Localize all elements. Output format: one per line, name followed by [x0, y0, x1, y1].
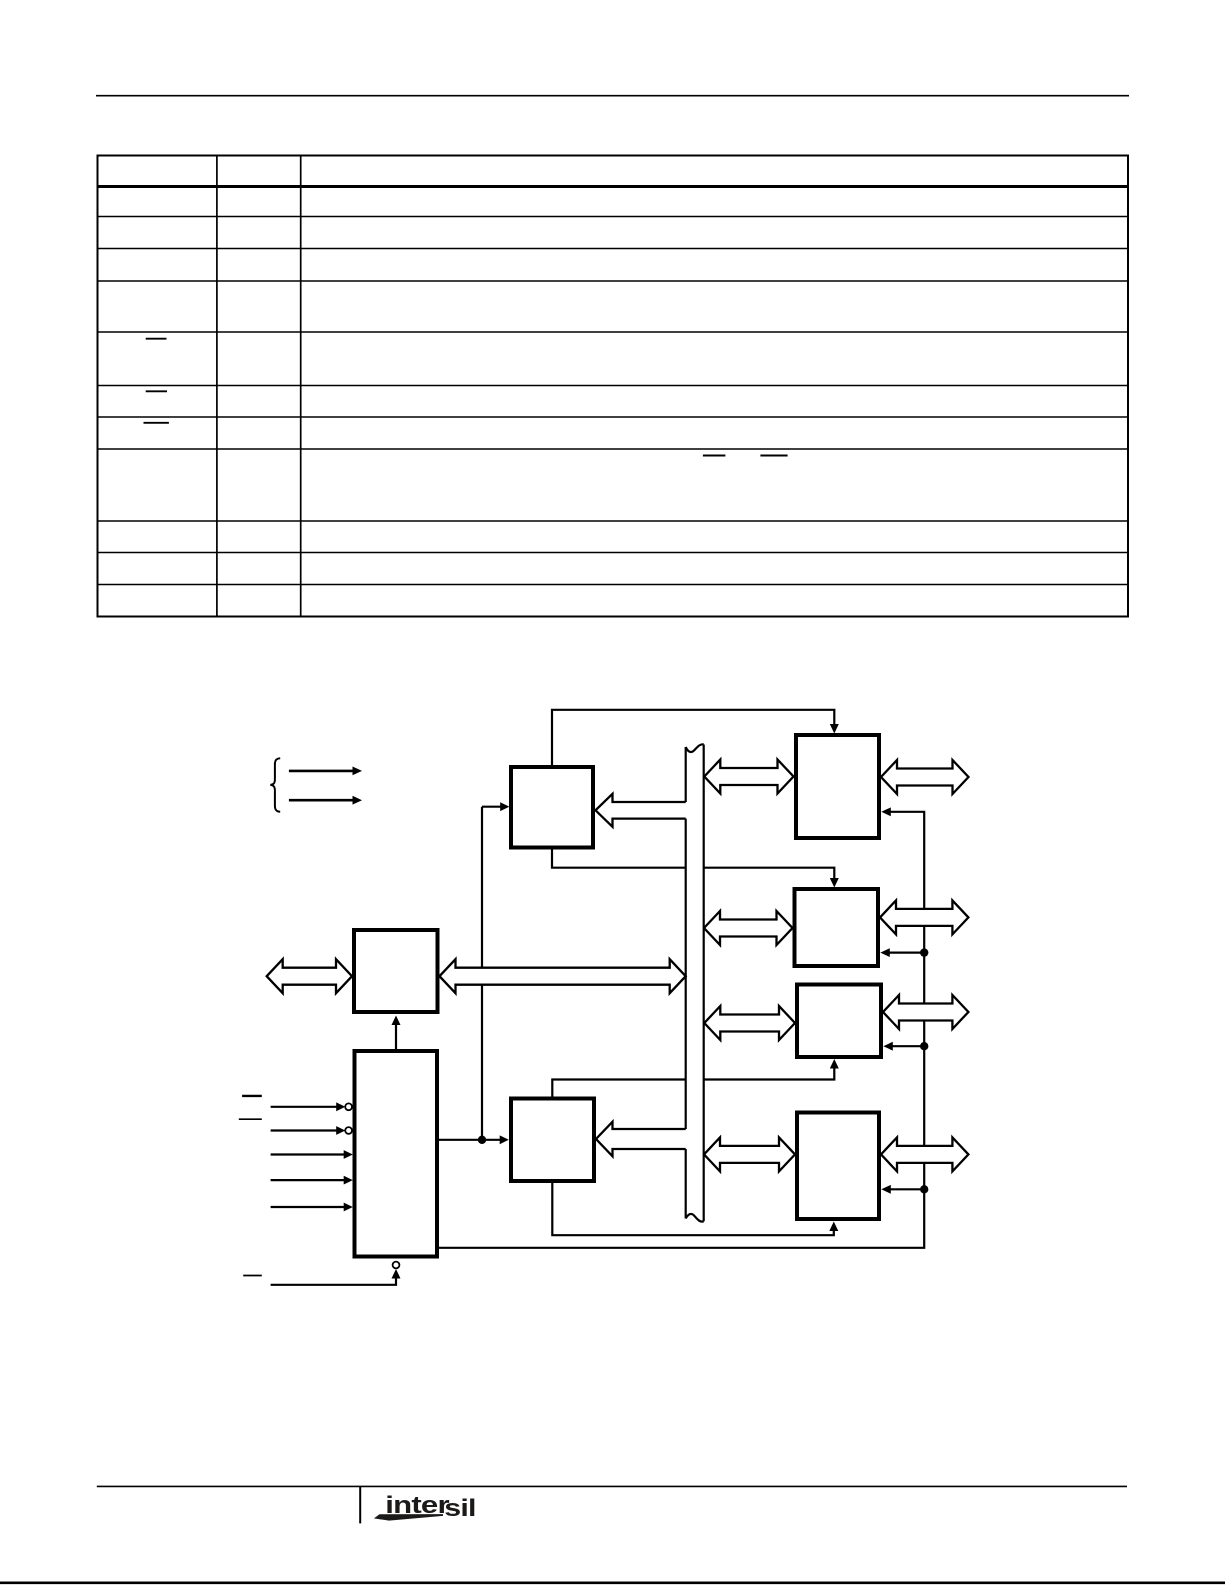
svg-text:sil: sil — [444, 1494, 476, 1522]
